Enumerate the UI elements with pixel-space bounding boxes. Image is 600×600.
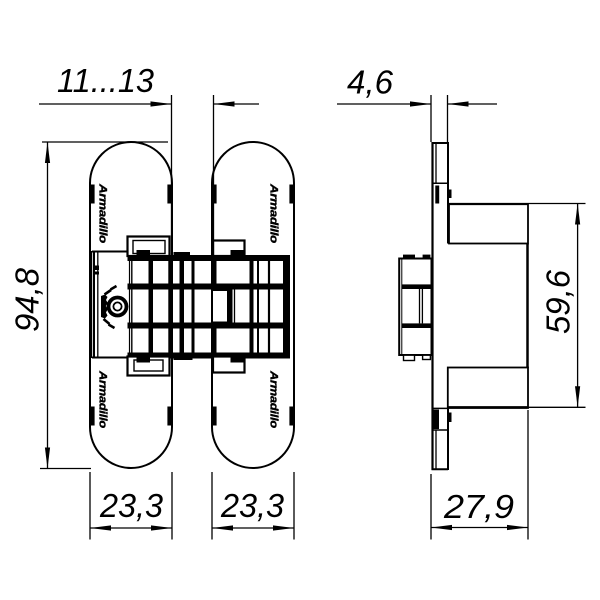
svg-text:23,3: 23,3 bbox=[99, 487, 164, 524]
svg-text:11...13: 11...13 bbox=[57, 62, 155, 99]
svg-text:27,9: 27,9 bbox=[443, 488, 514, 525]
svg-text:Armadillo: Armadillo bbox=[97, 183, 109, 244]
svg-text:59,6: 59,6 bbox=[540, 269, 577, 334]
svg-text:Armadillo: Armadillo bbox=[268, 370, 280, 429]
svg-text:Armadillo: Armadillo bbox=[97, 370, 109, 429]
svg-text:94,8: 94,8 bbox=[9, 267, 46, 332]
svg-text:4,6: 4,6 bbox=[347, 64, 394, 101]
svg-text:Armadillo: Armadillo bbox=[268, 183, 280, 244]
svg-text:23,3: 23,3 bbox=[220, 487, 285, 524]
